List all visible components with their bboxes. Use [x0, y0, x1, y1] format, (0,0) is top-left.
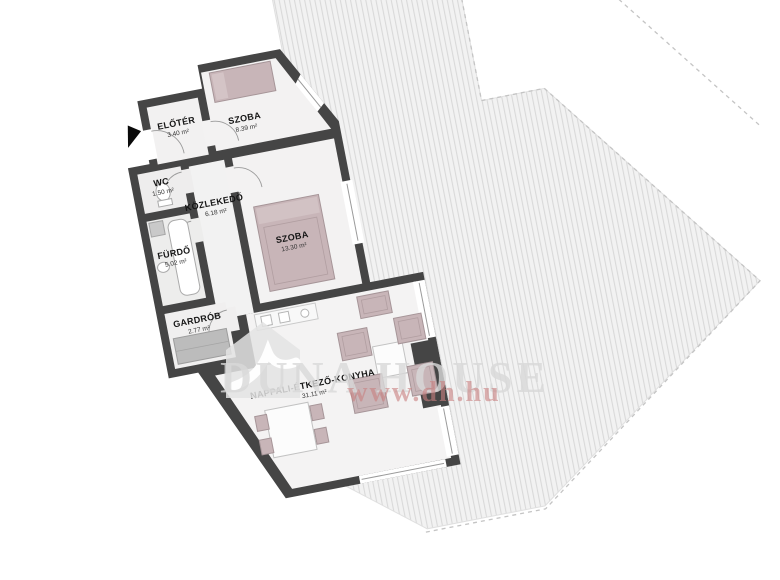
floor-plan-canvas: ELŐTÉR 3.40 m² SZOBA 8.39 m² WC 1.50 m² … — [0, 0, 780, 580]
dining-chair — [259, 438, 274, 455]
floor-plan-page: ELŐTÉR 3.40 m² SZOBA 8.39 m² WC 1.50 m² … — [0, 0, 780, 580]
washing-machine — [149, 221, 165, 237]
dining-chair — [310, 404, 325, 421]
property-line-dashed — [589, 0, 759, 151]
dining-chair — [255, 414, 270, 431]
dining-chair — [314, 427, 329, 444]
kitchen-sink — [278, 311, 290, 323]
watermark-url-text: www.dh.hu — [347, 377, 500, 408]
entrance-arrow-icon — [124, 123, 144, 148]
armchair — [393, 313, 425, 344]
